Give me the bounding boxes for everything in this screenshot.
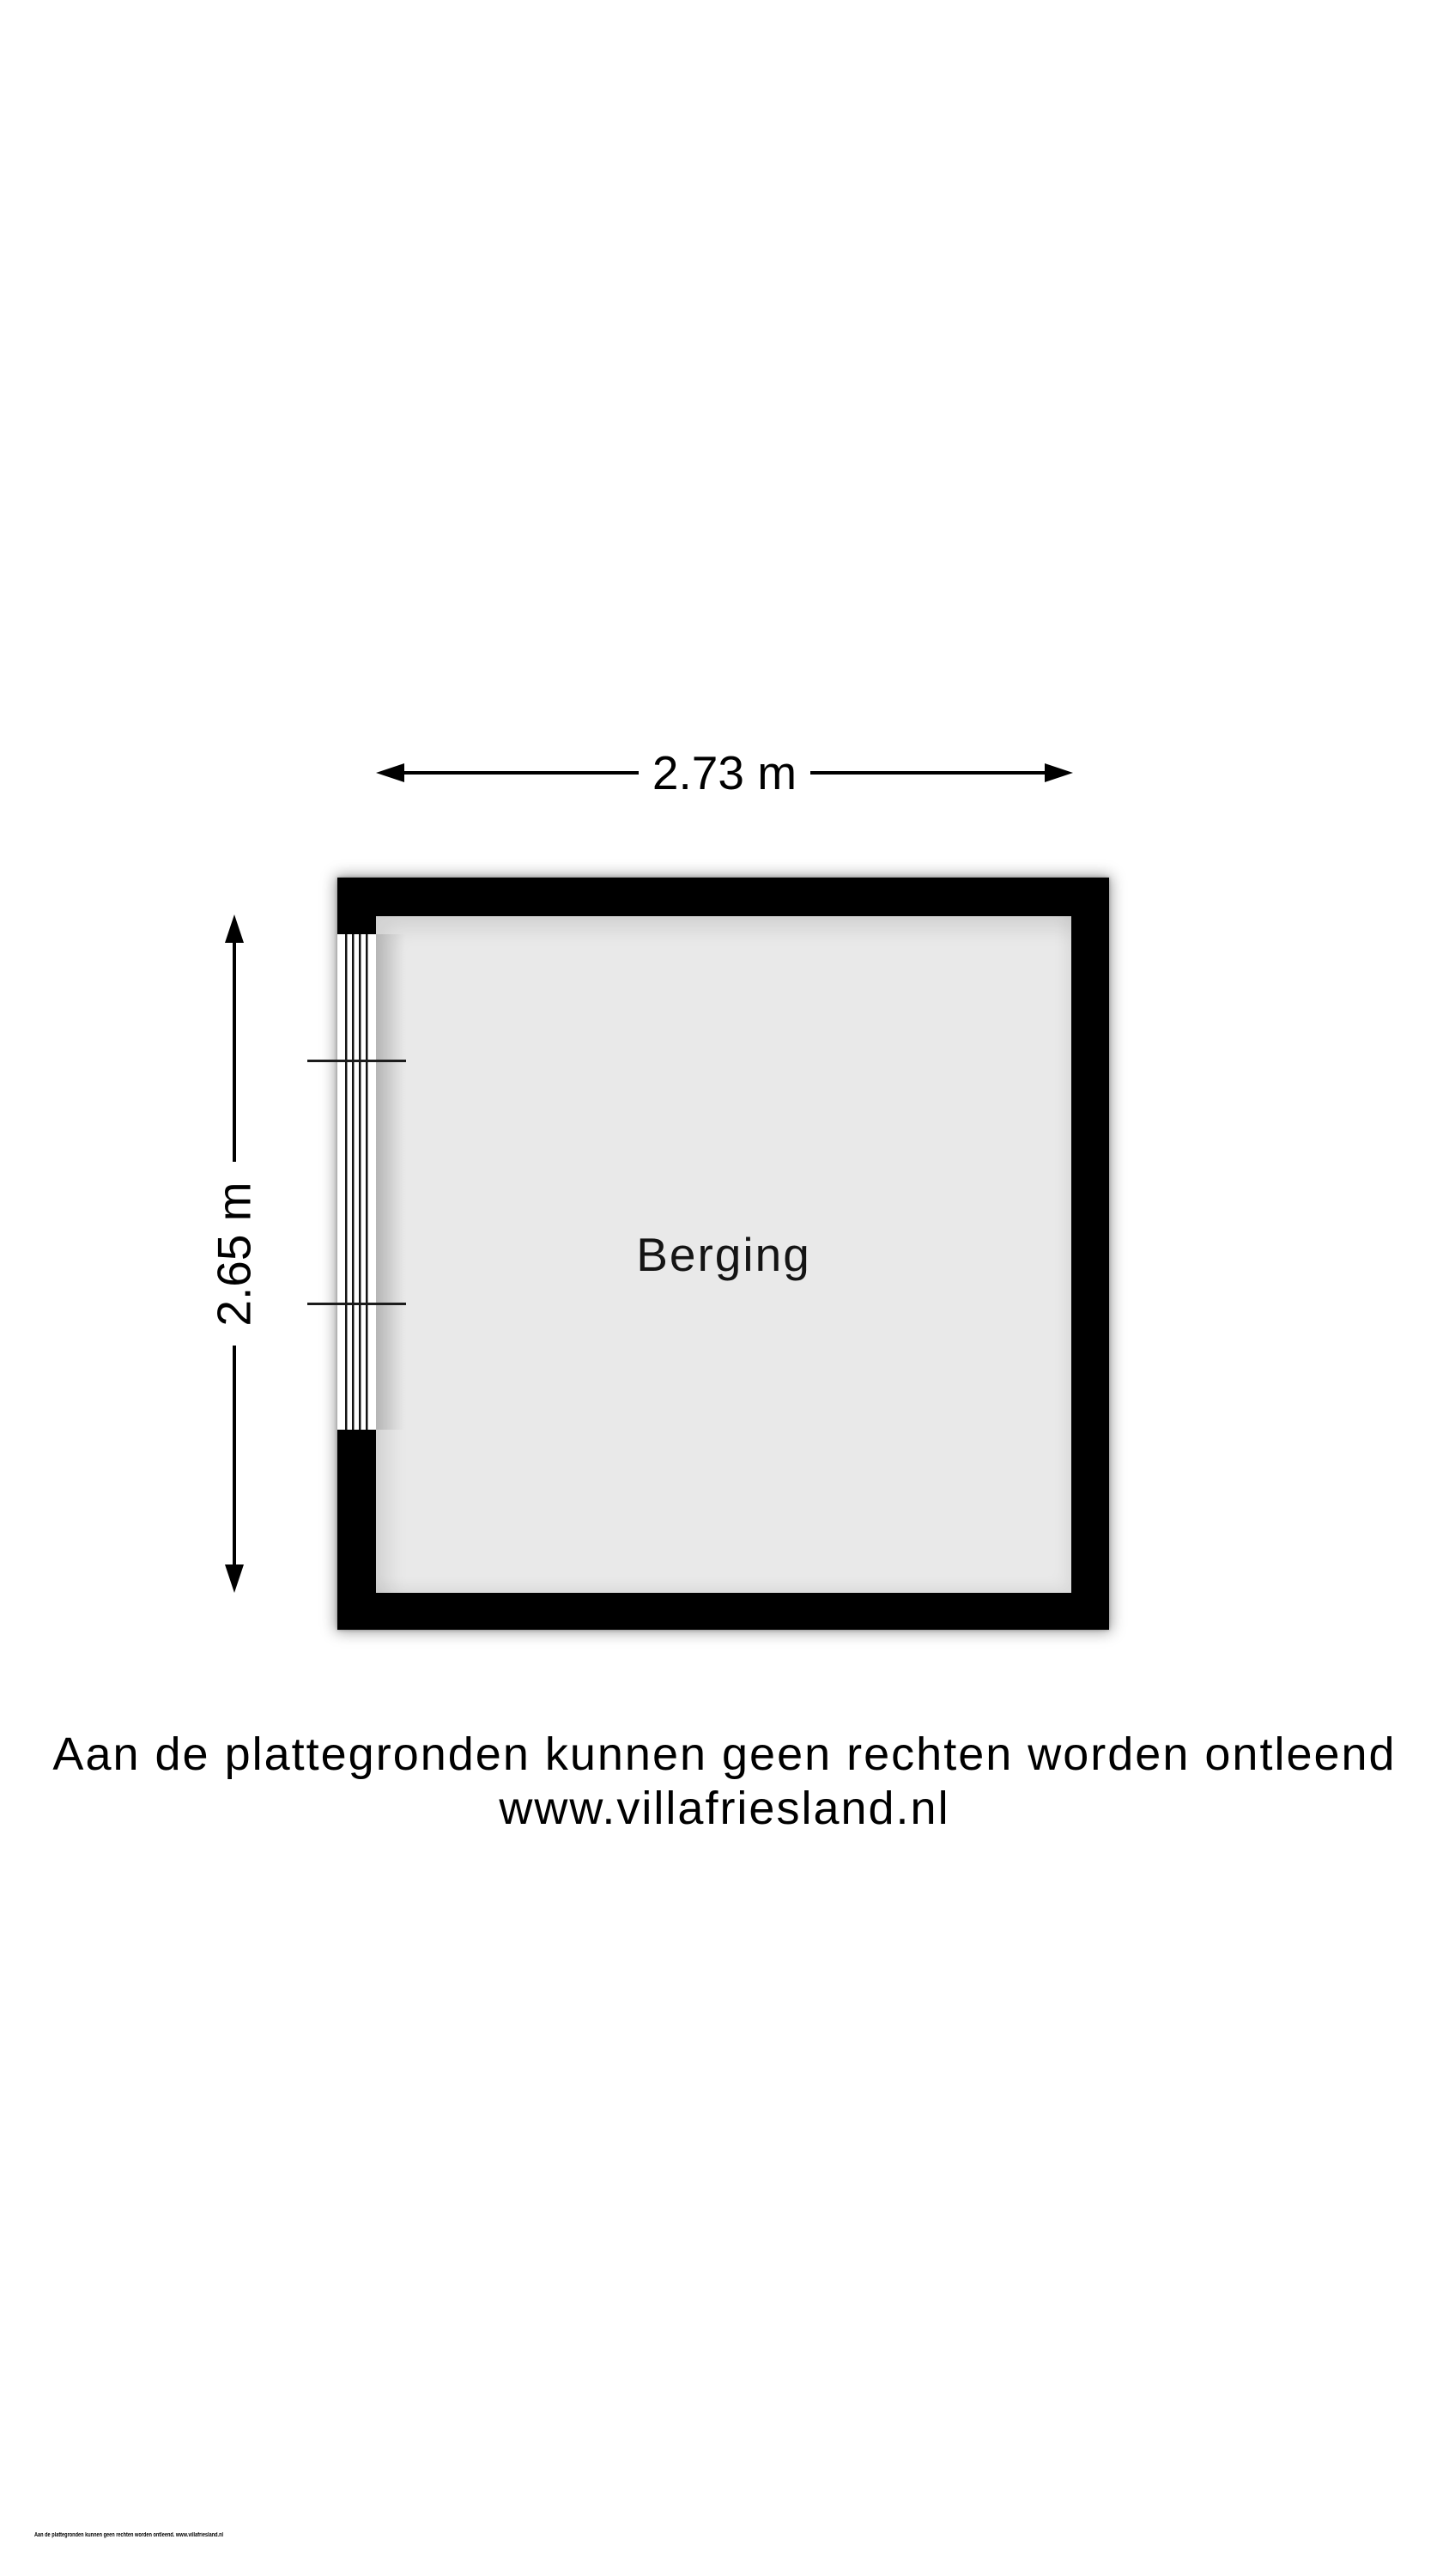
window-tick-bottom bbox=[307, 1303, 406, 1305]
window-light bbox=[376, 934, 405, 1430]
dimension-line bbox=[404, 771, 639, 775]
arrow-down-icon bbox=[225, 1564, 244, 1593]
height-dimension-label-box: 2.65 m bbox=[162, 1162, 306, 1346]
window-symbol bbox=[337, 934, 376, 1430]
room-berging: Berging bbox=[337, 878, 1109, 1630]
dimension-line bbox=[810, 771, 1045, 775]
arrow-left-icon bbox=[376, 763, 404, 782]
height-dimension: 2.65 m bbox=[215, 914, 254, 1593]
width-dimension: 2.73 m bbox=[376, 737, 1073, 809]
dimension-line bbox=[233, 943, 236, 1162]
footer-small-text: Aan de plattegronden kunnen geen rechten… bbox=[34, 2532, 223, 2538]
disclaimer-text: Aan de plattegronden kunnen geen rechten… bbox=[0, 1728, 1449, 1782]
height-dimension-label: 2.65 m bbox=[211, 1182, 258, 1326]
dimension-line bbox=[233, 1346, 236, 1564]
disclaimer-url: www.villafriesland.nl bbox=[0, 1782, 1449, 1836]
window-tick-top bbox=[307, 1060, 406, 1062]
room-interior: Berging bbox=[376, 916, 1071, 1593]
room-label: Berging bbox=[636, 1227, 811, 1282]
disclaimer: Aan de plattegronden kunnen geen rechten… bbox=[0, 1728, 1449, 1836]
arrow-up-icon bbox=[225, 914, 244, 943]
width-dimension-label: 2.73 m bbox=[639, 750, 810, 797]
arrow-right-icon bbox=[1045, 763, 1073, 782]
